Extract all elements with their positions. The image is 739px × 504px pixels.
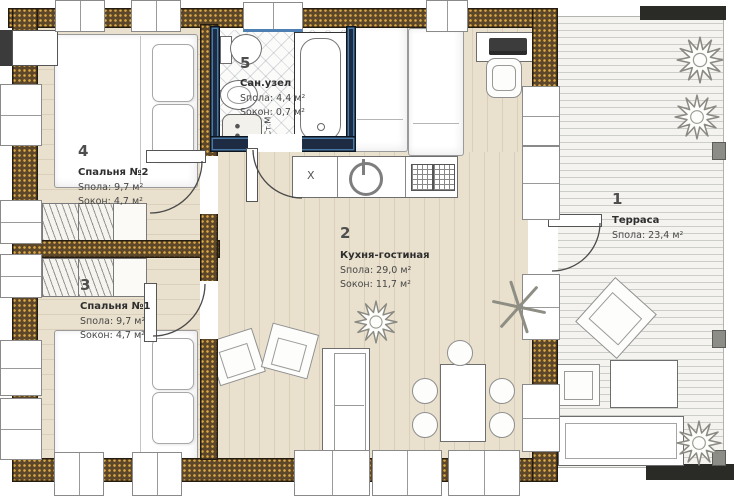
sofa-cushion-line: [334, 405, 364, 406]
window: [0, 340, 42, 396]
dining-chair: [447, 340, 473, 366]
room-name: Спальня №2: [78, 165, 148, 181]
counter-divider: [337, 157, 338, 197]
kitchen-sink-handle: [362, 159, 365, 175]
dining-chair: [412, 412, 438, 438]
dining-table: [440, 364, 486, 442]
window: [131, 0, 181, 32]
room-number: 4: [78, 144, 148, 159]
dining-chair: [489, 378, 515, 404]
room-name: Сан.узел: [240, 76, 305, 92]
window: [0, 84, 42, 146]
kitchen-sink-icon: [349, 162, 383, 196]
terrace-label: 1 Терраса Sпола: 23,4 м²: [612, 192, 683, 243]
window: [132, 452, 182, 496]
terrace-rail-post: [712, 450, 726, 466]
window: [0, 254, 42, 298]
office-chair: [486, 58, 522, 98]
pillow: [152, 392, 194, 444]
lounge-chair-seat: [588, 292, 642, 346]
room-window-area: Sокон: 0,7 м²: [240, 106, 305, 120]
stove-burner-icon: [433, 164, 455, 191]
room-name: Терраса: [612, 213, 683, 229]
laptop-icon: [489, 38, 527, 55]
terrace-rail-post: [712, 142, 726, 160]
bathroom-wall-right: [346, 26, 356, 146]
terrace-roof-edge-bottom: [646, 464, 734, 480]
exterior-pillar: [0, 30, 12, 66]
terrace-bench-inner: [565, 423, 677, 459]
room-window-area: Sокон: 4,7 м²: [78, 195, 148, 209]
window: [0, 398, 42, 460]
armchair-seat: [271, 337, 307, 372]
sofa: [322, 348, 370, 462]
room-name: Спальня №1: [80, 299, 150, 315]
room-name: Кухня-гостиная: [340, 248, 430, 264]
room-number: 5: [240, 56, 305, 71]
room-window-area: Sокон: 4,7 м²: [80, 329, 150, 343]
room-floor-area: Sпола: 4,4 м²: [240, 92, 305, 106]
nook-single-bed: [352, 26, 408, 152]
bedroom1-door-opening: [200, 281, 218, 339]
window: [522, 274, 560, 340]
nook-single-bed: [408, 28, 464, 156]
window: [522, 86, 560, 146]
window: [522, 146, 560, 220]
bathtub-drain: [317, 123, 325, 131]
bedroom1-label: 3 Спальня №1 Sпола: 9,7 м² Sокон: 4,7 м²: [80, 278, 150, 343]
glass-door: [294, 450, 370, 496]
pillow: [152, 338, 194, 390]
kitchen-living-label: 2 Кухня-гостиная Sпола: 29,0 м² Sокон: 1…: [340, 226, 430, 292]
stove-burner-icon: [411, 164, 433, 191]
terrace-armchair-seat: [564, 371, 593, 400]
sheet-fold-line: [413, 123, 459, 124]
bathroom-window: [243, 2, 303, 32]
glass-door: [372, 450, 442, 496]
terrace-roof-edge-top: [640, 6, 726, 20]
room-floor-area: Sпола: 9,7 м²: [78, 181, 148, 195]
bedroom2-door-leaf: [146, 150, 206, 163]
armchair-seat: [219, 343, 256, 379]
bedroom2-door-opening: [200, 156, 218, 214]
terrace-armchair: [556, 364, 600, 406]
room-window-area: Sокон: 11,7 м²: [340, 278, 430, 292]
room-floor-area: Sпола: 29,0 м²: [340, 264, 430, 278]
sheet-fold-line: [357, 119, 403, 120]
dining-chair: [489, 412, 515, 438]
floor-plan: X Ст.М: [0, 0, 739, 504]
glass-door: [448, 450, 520, 496]
bedroom2-label: 4 Спальня №2 Sпола: 9,7 м² Sокон: 4,7 м²: [78, 144, 148, 209]
dining-chair: [412, 378, 438, 404]
window: [0, 200, 42, 244]
terrace-rail-post: [712, 330, 726, 348]
bed-blanket-line: [140, 332, 141, 460]
window: [54, 452, 104, 496]
bathroom-wall-left: [210, 26, 220, 146]
exterior-box: [12, 30, 58, 66]
room-number: 3: [80, 278, 150, 293]
wardrobe-section: [42, 203, 79, 242]
window: [426, 0, 468, 32]
office-chair-seat: [492, 65, 516, 91]
bathroom-door-leaf: [246, 148, 258, 202]
bathroom-label: 5 Сан.узел Sпола: 4,4 м² Sокон: 0,7 м²: [240, 56, 305, 120]
counter-divider: [405, 157, 406, 197]
window: [522, 384, 560, 452]
wall-bedroom-divider: [12, 240, 220, 258]
room-floor-area: Sпола: 9,7 м²: [80, 315, 150, 329]
window: [55, 0, 105, 32]
terrace-coffee-table: [610, 360, 678, 408]
wardrobe-section: [42, 258, 79, 297]
kitchen-x-mark: X: [307, 169, 315, 182]
room-floor-area: Sпола: 23,4 м²: [612, 229, 683, 243]
room-number: 1: [612, 192, 683, 207]
kitchen-counter: X: [292, 156, 458, 198]
room-number: 2: [340, 226, 430, 241]
pillow: [152, 44, 194, 102]
terrace-bench: [558, 416, 684, 466]
